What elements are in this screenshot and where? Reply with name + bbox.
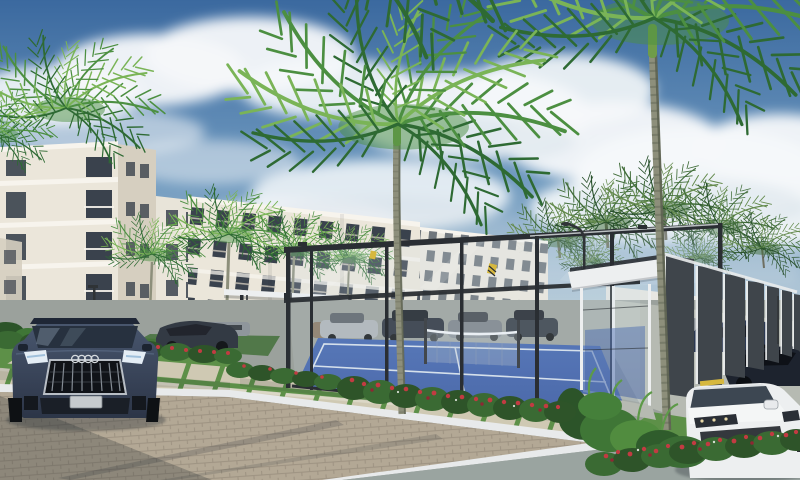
rendering-stage	[0, 0, 800, 480]
license-plate	[70, 396, 102, 408]
audi-mirror-left	[18, 344, 28, 351]
suv-mirror	[764, 400, 778, 409]
complex-rendering	[0, 0, 800, 480]
suv-roof	[30, 318, 140, 324]
street-lamp-right	[777, 296, 779, 344]
dark-audi-suv	[6, 318, 166, 431]
audi-grille	[44, 360, 126, 394]
audi-mirror-right	[142, 344, 152, 351]
